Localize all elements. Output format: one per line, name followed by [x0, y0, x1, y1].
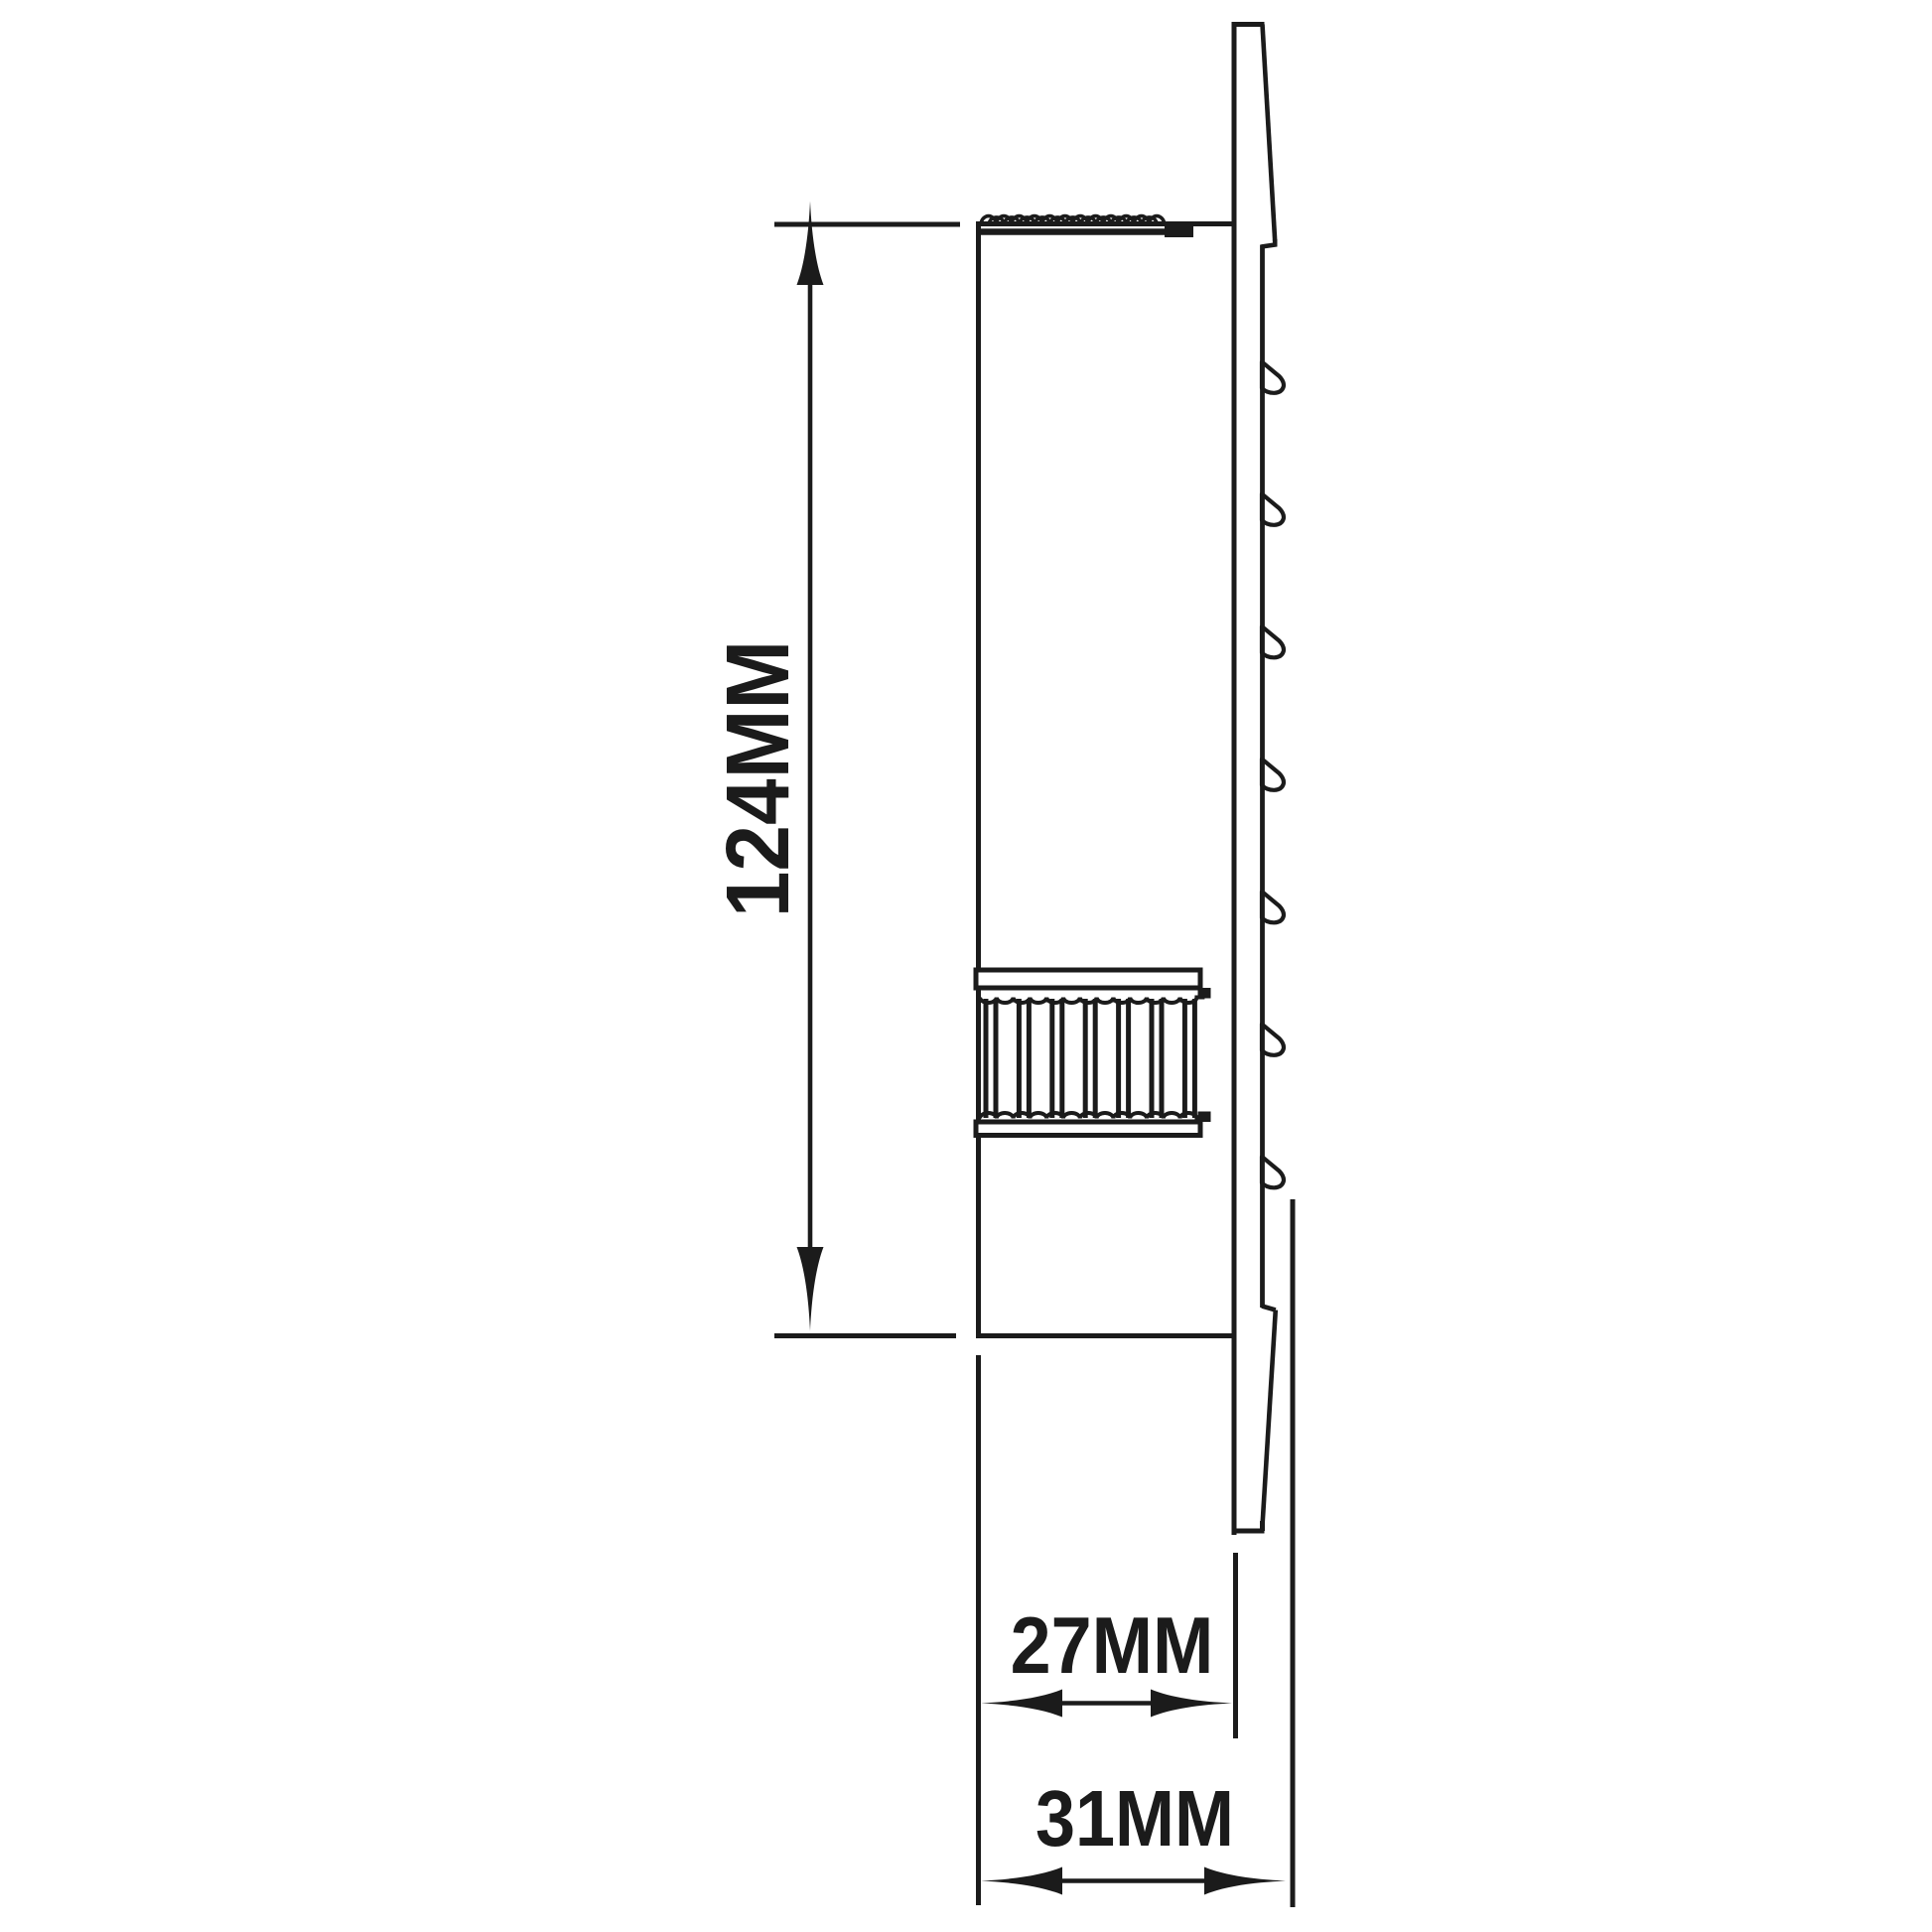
svg-text:31MM: 31MM	[1035, 1775, 1234, 1863]
svg-text:124MM: 124MM	[708, 640, 807, 917]
svg-text:27MM: 27MM	[1011, 1601, 1214, 1691]
